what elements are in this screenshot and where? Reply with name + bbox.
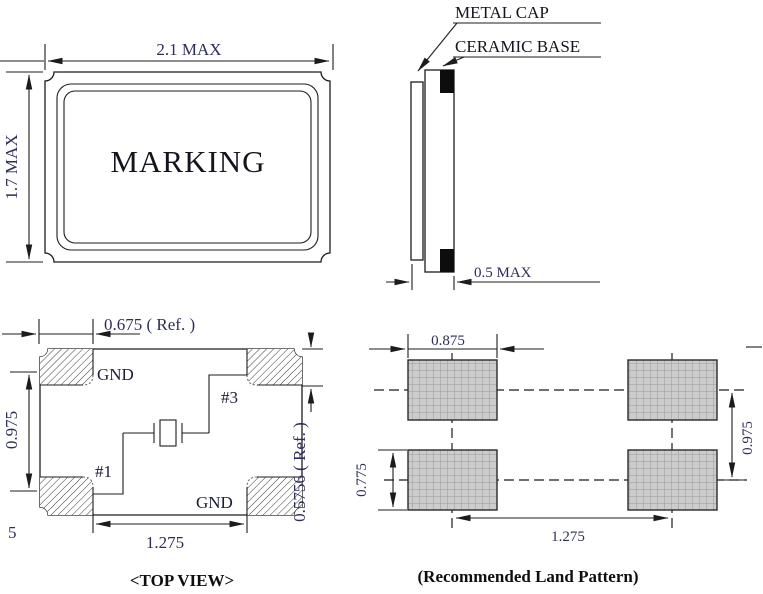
- dim-land-pad-width: 0.875: [431, 333, 465, 349]
- pad-label-gnd-top: GND: [97, 365, 134, 384]
- side-view: METAL CAP CERAMIC BASE 0.5 MAX: [386, 3, 601, 290]
- front-view: MARKING 2.1 MAX 1.7 MAX: [0, 40, 333, 262]
- terminal-pad-bottom: [440, 249, 454, 272]
- terminal-pad-top: [440, 70, 454, 93]
- pad-3-top-right: [247, 349, 302, 385]
- land-pad-top-left: [408, 360, 497, 420]
- metal-cap-label: METAL CAP: [455, 3, 549, 22]
- pad-label-3: #3: [221, 388, 238, 407]
- dim-pad-height-ref: 0.5756 ( Ref. ): [290, 422, 309, 522]
- dim-pad-pitch-horizontal: 1.275: [146, 533, 184, 552]
- land-pad-top-right: [628, 360, 717, 420]
- dim-pad-span-vertical: 0.975: [2, 411, 21, 449]
- land-pad-bottom-left: [408, 450, 497, 510]
- land-pattern: 0.875 0.775 1.275 0.975 (Recommended Lan…: [354, 333, 762, 586]
- land-pattern-caption: (Recommended Land Pattern): [418, 567, 639, 586]
- land-pad-bottom-right: [628, 450, 717, 510]
- dim-pad-offset-ref: 0.675 ( Ref. ): [104, 315, 195, 334]
- crystal-package-drawing: MARKING 2.1 MAX 1.7 MAX METAL CAP CERAMI…: [0, 0, 763, 594]
- stray-character: 5: [8, 523, 17, 542]
- pad-gnd-top-left: [40, 349, 93, 385]
- ceramic-base-label: CERAMIC BASE: [455, 37, 580, 56]
- top-view-caption: <TOP VIEW>: [130, 571, 234, 590]
- dim-width-max: 2.1 MAX: [156, 40, 221, 59]
- pad-label-gnd-bottom: GND: [196, 493, 233, 512]
- pad-label-1: #1: [95, 462, 112, 481]
- dim-thickness-max: 0.5 MAX: [474, 265, 532, 281]
- dim-land-row-pitch: 0.975: [740, 421, 756, 455]
- top-view: GND #3 #1 GND 0.675 ( Ref. ) 0.975 1.275…: [2, 315, 323, 590]
- dim-height-max: 1.7 MAX: [2, 134, 21, 199]
- marking-text: MARKING: [110, 144, 265, 179]
- dim-land-column-pitch: 1.275: [551, 529, 585, 545]
- metal-cap-shape: [411, 82, 423, 260]
- mechanical-drawing-page: MARKING 2.1 MAX 1.7 MAX METAL CAP CERAMI…: [0, 0, 763, 594]
- leader-arrow: [443, 57, 464, 66]
- pad-1-bottom-left: [40, 477, 93, 515]
- dim-land-pad-height: 0.775: [354, 463, 370, 497]
- ceramic-base-shape: [425, 70, 454, 272]
- leader-arrow: [418, 23, 457, 71]
